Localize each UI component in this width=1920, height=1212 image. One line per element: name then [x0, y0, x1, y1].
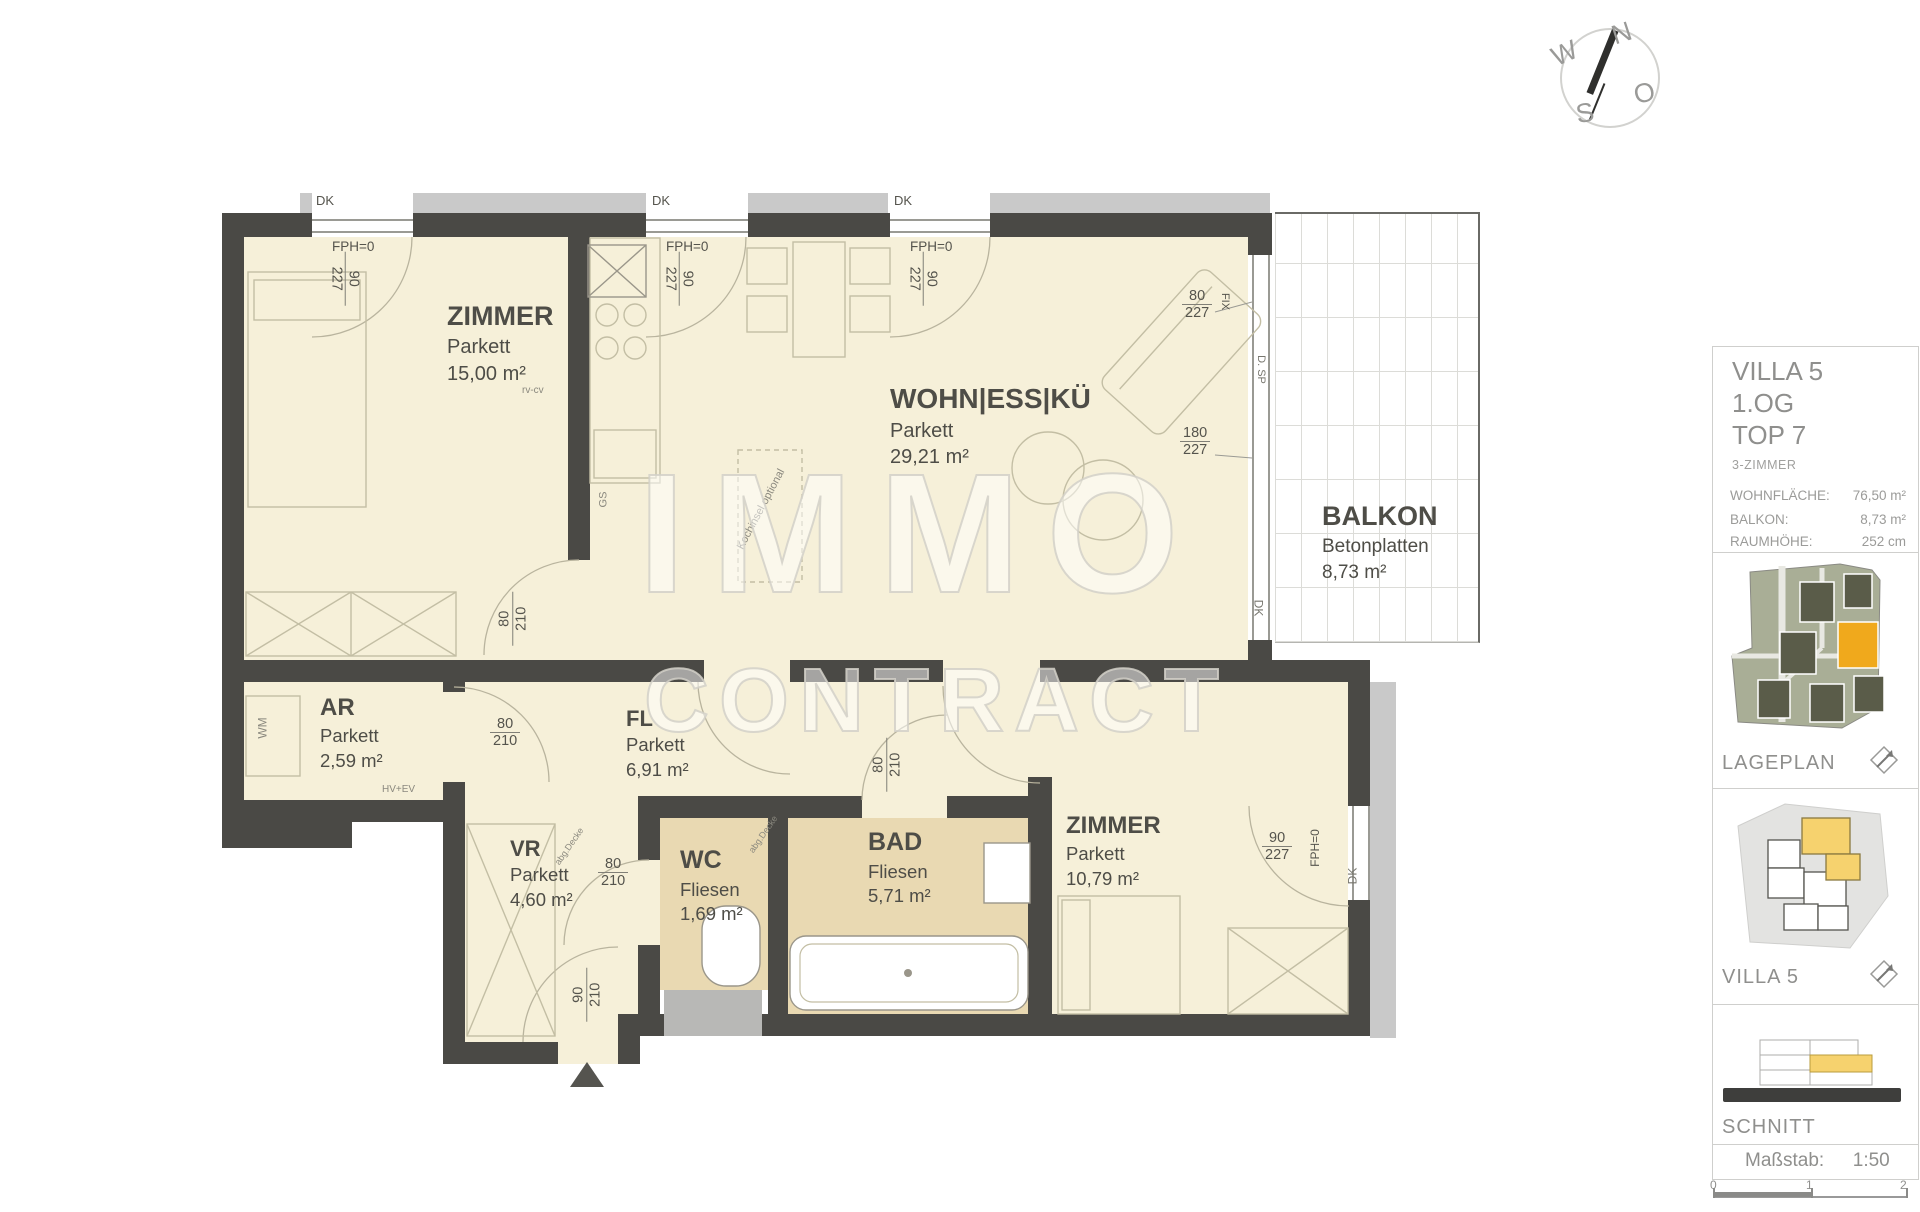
wall-bottom [762, 1014, 1370, 1036]
dim-window-1: 90227 [328, 252, 361, 306]
label-hvev: HV+EV [382, 785, 415, 795]
roof-band [990, 193, 1270, 213]
wall-vr-left [443, 782, 465, 1064]
stat-row-area: WOHNFLÄCHE: 76,50 m² [1730, 488, 1906, 503]
window-zimmer1 [312, 219, 413, 233]
dim-dk-balcony: DK [1252, 600, 1264, 617]
schnitt-diagram [1715, 1032, 1910, 1107]
scale-bar-tick [1811, 1188, 1813, 1198]
room-fl-floor [638, 682, 1028, 796]
stat-row-height: RAUMHÖHE: 252 cm [1730, 534, 1906, 549]
wall-top [413, 213, 646, 237]
wall-top [748, 213, 890, 237]
dim-balcony-door: 180227 [1180, 425, 1210, 458]
wall-bottom [638, 1014, 664, 1036]
entrance-arrow-icon [570, 1062, 604, 1087]
wall-middle [222, 660, 704, 682]
wall-bad-zimmer2 [1028, 777, 1052, 1014]
wall-ar-bottom [222, 800, 465, 822]
label-bad: BAD Fliesen 5,71 m² [868, 826, 931, 909]
dim-window-2: 90227 [662, 252, 695, 306]
dim-fph-zimmer2: FPH=0 [1309, 829, 1321, 867]
wall-vr-bottom [443, 1042, 558, 1064]
door-gap-fill [1028, 682, 1052, 777]
door-gap-fill [638, 860, 660, 945]
wall-left [222, 213, 244, 822]
door-gap-fill [443, 687, 465, 782]
stat-height-value: 252 cm [1862, 534, 1906, 549]
wall-top [990, 213, 1272, 237]
wall-zimmer2-right [1348, 660, 1370, 806]
highlighted-floor [1810, 1055, 1872, 1072]
project-title-2: 1.OG [1732, 388, 1794, 419]
stat-balcony-label: BALKON: [1730, 512, 1789, 527]
label-wohn: WOHN|ESS|KÜ Parkett 29,21 m² [890, 380, 1091, 471]
wall-wc-bad [768, 818, 788, 1014]
scale-bar-segment [1713, 1192, 1812, 1197]
scale-value: 1:50 [1853, 1150, 1890, 1171]
entry-niche [664, 990, 762, 1036]
wall-bad-top [638, 796, 862, 818]
label-rvcv: rv-cv [522, 386, 544, 396]
dim-door-wc: 80210 [598, 856, 628, 889]
scale-label: Maßstab: [1745, 1150, 1824, 1171]
wall-balcony-pier [1248, 213, 1272, 255]
stat-height-label: RAUMHÖHE: [1730, 534, 1813, 549]
window-zimmer2 [1352, 806, 1370, 900]
project-title-1: VILLA 5 [1732, 356, 1823, 387]
stat-area-value: 76,50 m² [1853, 488, 1906, 503]
roof-band [300, 193, 312, 213]
wall-zimmer1-right [568, 235, 590, 560]
opening-fill [704, 660, 790, 682]
label-ar: AR Parkett 2,59 m² [320, 692, 383, 774]
roof-band [748, 193, 888, 213]
lageplan-caption: LAGEPLAN [1722, 752, 1836, 775]
stat-row-balcony: BALKON: 8,73 m² [1730, 512, 1906, 527]
door-gap-fill [862, 796, 947, 818]
entrance-gap-fill [558, 1042, 618, 1064]
label-wm: WM [257, 717, 269, 738]
label-wc: WC Fliesen 1,69 m² [680, 844, 743, 927]
dim-fix: FIX [1219, 293, 1230, 310]
dim-window-zimmer2: 90227 [1262, 830, 1292, 863]
villa-caption: VILLA 5 [1722, 966, 1799, 989]
dim-dk-3: DK [894, 194, 912, 208]
wall-wc-left [638, 818, 660, 860]
dim-window-3: 90227 [906, 252, 939, 306]
label-fl: FL Parkett 6,91 m² [626, 704, 689, 783]
window-kitchen [646, 219, 748, 233]
dim-dk-1: DK [316, 194, 334, 208]
dim-dsp: D. SP [1255, 355, 1266, 384]
wall-bad-top [947, 796, 1028, 818]
wall-zimmer2-right [1348, 900, 1370, 1036]
project-title-3: TOP 7 [1732, 420, 1806, 451]
scale-bar-tick [1906, 1188, 1908, 1198]
wall-step [222, 822, 352, 848]
wall-middle [1040, 660, 1348, 682]
roof-band [413, 193, 646, 213]
wall-middle [790, 660, 943, 682]
schnitt-caption: SCHNITT [1722, 1116, 1816, 1139]
highlighted-building [1838, 622, 1878, 668]
stat-area-label: WOHNFLÄCHE: [1730, 488, 1830, 503]
dim-door-bad: 80210 [870, 738, 903, 792]
scale-row: Maßstab: 1:50 [1745, 1150, 1890, 1172]
apartment-type: 3-ZIMMER [1732, 458, 1796, 472]
door-gap-fill [568, 560, 590, 660]
exterior-strip [1370, 682, 1396, 1038]
dim-dk-2: DK [652, 194, 670, 208]
mini-compass-icon [1868, 958, 1900, 990]
dim-dk-zimmer2: DK [1346, 868, 1358, 885]
mini-compass-icon [1868, 744, 1900, 776]
window-balcony-door [1252, 255, 1270, 640]
window-living [890, 219, 990, 233]
dim-door-ar: 80210 [490, 716, 520, 749]
label-gs: GS [598, 492, 609, 508]
lageplan-map [1722, 560, 1902, 745]
label-zimmer2: ZIMMER Parkett 10,79 m² [1066, 810, 1161, 892]
label-zimmer1: ZIMMER Parkett 15,00 m² [447, 298, 553, 388]
label-balkon: BALKON Betonplatten 8,73 m² [1322, 498, 1438, 585]
wall-entry-right [618, 1014, 640, 1064]
scale-bar-tick [1713, 1188, 1715, 1198]
dim-door-zimmer1: 80210 [496, 592, 529, 646]
ground-bar [1723, 1088, 1901, 1102]
wall-ar-right [443, 682, 465, 692]
opening-fill [943, 660, 1040, 682]
stat-balcony-value: 8,73 m² [1860, 512, 1906, 527]
villa-thumbnail [1730, 796, 1895, 956]
dim-fix-window: 80227 [1182, 288, 1212, 321]
dim-door-entrance: 90210 [570, 968, 603, 1022]
